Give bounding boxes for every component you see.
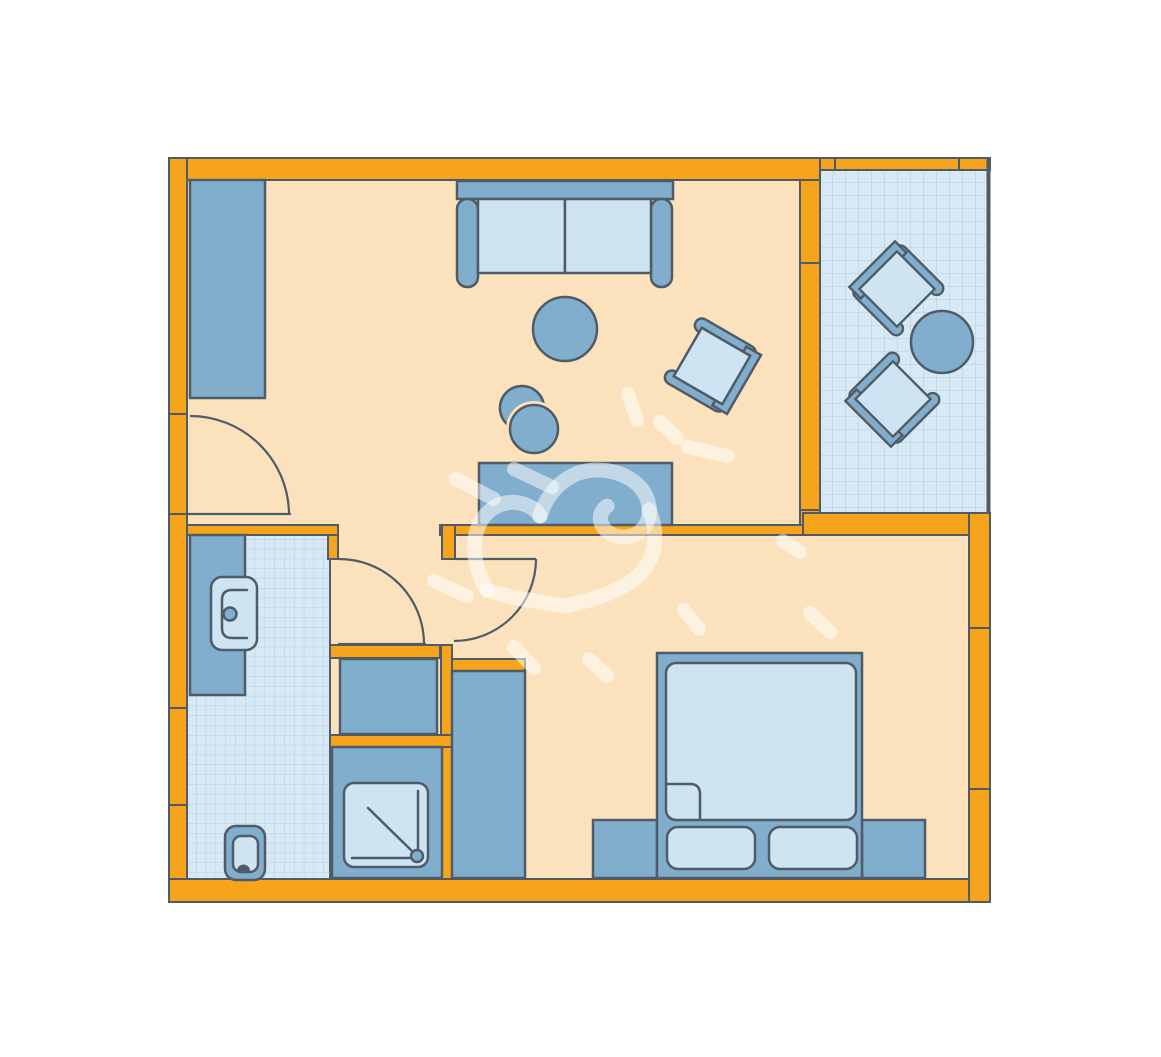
stool-front <box>510 405 558 453</box>
wall-top <box>169 158 820 180</box>
hall-closet <box>340 659 437 734</box>
balcony-table <box>911 311 973 373</box>
pillow-left <box>667 827 755 869</box>
wall-stub-bedroom-door <box>442 525 455 559</box>
toilet <box>225 826 265 880</box>
sink-drain <box>224 608 237 621</box>
hall-wardrobe <box>452 671 525 878</box>
pillow-right <box>769 827 857 869</box>
wall-bathroom-top <box>187 525 338 535</box>
wall-nib-wardrobe <box>452 659 525 671</box>
sofa <box>457 181 673 287</box>
floor-plan-svg <box>0 0 1161 1057</box>
sink <box>211 577 257 650</box>
sofa-cushion-left <box>478 199 565 273</box>
shower-drain <box>411 850 423 862</box>
sofa-arm-left <box>457 199 478 287</box>
wall-stub-bathroom-door <box>328 535 338 559</box>
wall-bedroom-top-right <box>803 513 969 535</box>
floor-plan <box>0 0 1161 1057</box>
shower <box>332 747 442 878</box>
coffee-table <box>533 297 597 361</box>
wall-bottom <box>169 879 990 902</box>
balcony-railing-top <box>820 158 990 170</box>
wall-right-bedroom <box>969 513 990 902</box>
wall-living-balcony <box>800 180 820 535</box>
wall-left <box>169 158 187 902</box>
double-bed <box>657 653 862 878</box>
mattress <box>666 663 856 820</box>
nightstand-left <box>593 820 657 878</box>
sofa-back <box>457 181 673 199</box>
wall-hall-lower <box>330 735 452 747</box>
nightstand-right <box>862 820 925 878</box>
wall-hall-upper <box>330 645 440 658</box>
sofa-cushion-right <box>565 199 651 273</box>
wardrobe <box>190 180 265 398</box>
sofa-arm-right <box>651 199 672 287</box>
